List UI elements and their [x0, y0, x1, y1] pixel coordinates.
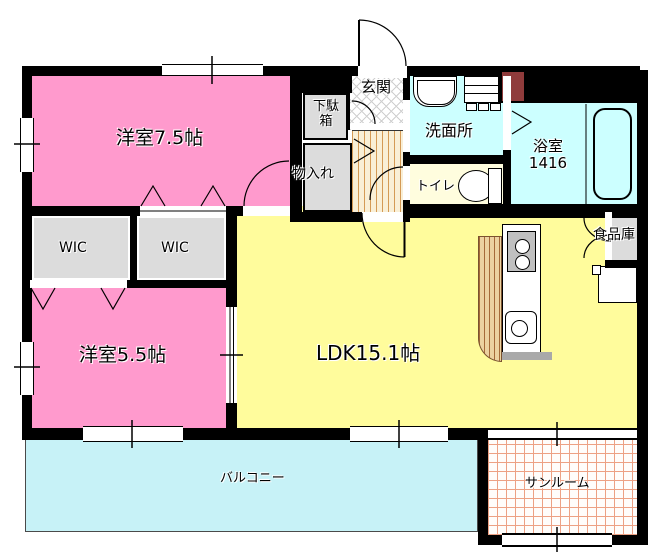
washer-tray-segment	[478, 103, 489, 111]
label-bathroom-line1: 浴室	[533, 137, 563, 155]
ldk-door-opening	[362, 212, 403, 222]
washroom-door-opening	[403, 100, 410, 152]
gas-stove	[507, 231, 536, 272]
label-toilet: トイレ	[416, 180, 455, 195]
stove-burner	[515, 239, 530, 254]
room-hallway	[352, 126, 403, 212]
label-entrance: 玄関	[361, 79, 391, 96]
washer-tray-segment	[490, 103, 501, 111]
wall-pantry-bottom	[605, 260, 637, 268]
vanity-sink	[413, 76, 457, 107]
bedroom75-door-opening	[243, 206, 290, 216]
wall-above-shoe-cabinet	[302, 66, 352, 93]
label-balcony: バルコニー	[220, 472, 285, 487]
wall-wetarea-ldk	[403, 204, 637, 218]
window-bedroom55-balcony	[83, 426, 183, 442]
washer-tray-segment	[466, 103, 477, 111]
label-wic-left: WIC	[59, 240, 87, 256]
kitchen-sink-drain	[511, 320, 528, 337]
floor-plan: 洋室7.5帖 WIC WIC 洋室5.5帖 LDK15.1帖 玄関 下駄 箱 物…	[0, 0, 664, 557]
washer-line	[465, 93, 499, 94]
kitchen-counter-base	[502, 352, 552, 360]
wall-bedroom75-hall	[290, 66, 302, 222]
wall-washroom-toilet	[403, 155, 505, 164]
entrance-door-opening	[358, 64, 407, 78]
wic-center-door-opening	[140, 206, 226, 216]
pantry-cabinet-knob	[592, 265, 601, 275]
label-wic-center: WIC	[161, 240, 189, 256]
bathtub	[593, 108, 632, 200]
label-bedroom-7-5: 洋室7.5帖	[116, 128, 203, 150]
label-ldk: LDK15.1帖	[316, 342, 420, 365]
label-storage: 物入れ	[292, 166, 334, 182]
kitchen-sink	[505, 311, 537, 344]
label-shoe-cabinet-line2: 箱	[319, 114, 332, 129]
wall-outer-right	[637, 70, 648, 545]
washer-line	[465, 85, 499, 86]
toilet-door-opening	[403, 166, 410, 200]
toilet-tank	[488, 168, 502, 204]
label-shoe-cabinet-line1: 下駄	[313, 99, 339, 114]
window-bedroom55-left	[20, 342, 34, 395]
label-bedroom-5-5: 洋室5.5帖	[79, 345, 166, 367]
sliding-door-bedroom55-ldk	[226, 307, 237, 403]
window-bedroom75-left	[20, 118, 34, 172]
window-sunroom-bottom	[502, 533, 612, 547]
entrance-door-arc	[359, 20, 406, 66]
kitchen-bar-counter	[478, 236, 502, 362]
label-bathroom-line2: 1416	[529, 154, 567, 172]
wic-left-door-opening	[30, 280, 127, 288]
label-sunroom: サンルーム	[525, 477, 590, 492]
stove-burner	[515, 255, 530, 270]
pantry-cabinet	[598, 266, 637, 303]
label-washroom: 洗面所	[425, 122, 473, 140]
entrance-step	[352, 123, 403, 131]
label-shoe-cabinet: 下駄 箱	[304, 100, 348, 130]
bathroom-door-opening	[503, 76, 511, 150]
window-ldk-balcony	[350, 426, 448, 442]
label-pantry: 食品庫	[593, 227, 635, 243]
label-bathroom: 浴室 1416	[522, 138, 574, 173]
window-bedroom75-top	[162, 64, 263, 76]
vanity-sink-basin	[417, 80, 455, 105]
window-ldk-sunroom	[488, 428, 637, 440]
washing-machine-pan	[464, 76, 500, 103]
wall-sunroom-left	[478, 432, 488, 545]
room-ldk	[237, 206, 637, 428]
wall-between-wics	[130, 216, 137, 280]
